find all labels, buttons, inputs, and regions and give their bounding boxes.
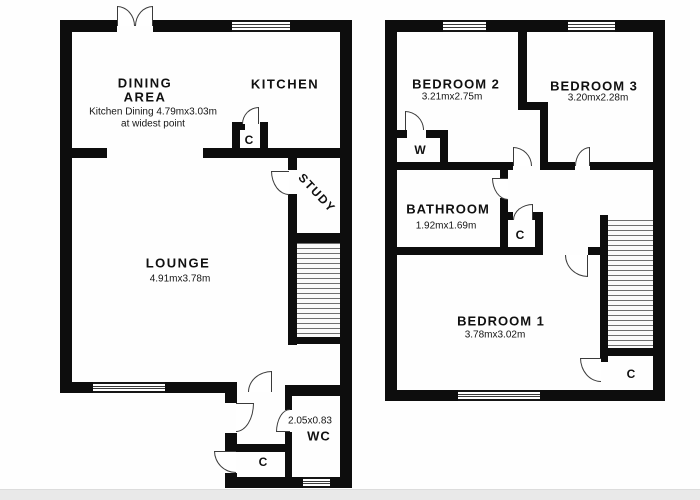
study-label: STUDY (295, 171, 338, 216)
staircase-first (608, 220, 653, 348)
window (568, 20, 615, 32)
wall-segment (500, 212, 513, 220)
bedroom3-label: BEDROOM 3 (550, 79, 638, 94)
floorplan-image: DINING AREA Kitchen Dining 4.79mx3.03m a… (0, 0, 700, 500)
bedroom2-dims: 3.21mx2.75m (422, 92, 483, 103)
wall-segment (340, 20, 352, 488)
kitchen-closet-label: C (245, 133, 254, 147)
window (93, 382, 165, 393)
french-door-right-arc (135, 6, 153, 26)
wall-segment (486, 20, 568, 32)
bedroom1-label: BEDROOM 1 (457, 314, 545, 329)
study-door-arc (271, 171, 289, 195)
wall-segment (518, 32, 527, 110)
wall-segment (153, 20, 232, 32)
wall-segment (385, 390, 458, 401)
wall-segment (72, 148, 107, 158)
kitchen-closet-door-arc (242, 107, 259, 124)
bathroom-label: BATHROOM (406, 202, 490, 217)
bedroom2-label: BEDROOM 2 (412, 77, 500, 92)
window (303, 477, 330, 488)
lounge-dims: 4.91mx3.78m (150, 274, 211, 285)
lounge-label: LOUNGE (146, 256, 211, 271)
bathroom-door-arc (492, 178, 508, 200)
wall-segment (600, 348, 653, 356)
wardrobe-label: W (414, 143, 425, 157)
bedroom1-closet-door-arc (580, 358, 601, 382)
wall-segment (653, 20, 665, 401)
wall-segment (225, 382, 237, 403)
dining-note-line1: Kitchen Dining 4.79mx3.03m (89, 107, 217, 118)
wall-segment (397, 162, 513, 170)
wall-segment (285, 385, 292, 410)
scan-edge-strip (0, 489, 700, 500)
wall-segment (288, 158, 297, 170)
window (443, 20, 486, 32)
landing-closet-label: C (516, 228, 525, 242)
bedroom1-closet-label: C (627, 367, 636, 381)
bedroom2-door-arc (513, 147, 532, 166)
wall-segment (288, 233, 352, 243)
bedroom3-door-arc (575, 147, 590, 166)
wall-segment (540, 162, 575, 170)
landing-closet-door-arc (513, 204, 533, 220)
window (232, 20, 290, 32)
wall-segment (203, 148, 352, 158)
wall-segment (288, 337, 352, 344)
wall-segment (540, 102, 548, 170)
lounge-hall-door-arc (248, 371, 272, 392)
hall-closet-label: C (259, 455, 268, 469)
dining-area-label-line1: DINING (118, 76, 173, 91)
wall-segment (288, 194, 297, 345)
wall-segment (397, 247, 543, 255)
wc-label: WC (307, 429, 331, 444)
bedroom1-dims: 3.78mx3.02m (465, 330, 526, 341)
staircase-ground (297, 243, 340, 337)
french-door-left-arc (117, 6, 135, 26)
hall-closet-door-arc (214, 451, 236, 473)
wall-segment (225, 477, 303, 488)
wall-segment (260, 122, 268, 152)
bedroom3-dims: 3.20mx2.28m (568, 93, 629, 104)
wall-segment (285, 432, 292, 477)
kitchen-label: KITCHEN (251, 77, 319, 92)
hall-door-arc (236, 403, 254, 432)
bedroom1-door-arc (565, 255, 588, 277)
wall-segment (225, 433, 237, 452)
wall-segment (288, 385, 352, 396)
wall-segment (385, 20, 397, 401)
wc-dims: 2.05x0.83 (288, 416, 332, 427)
dining-area-label-line2: AREA (124, 90, 167, 105)
wall-segment (590, 162, 653, 170)
wall-segment (397, 130, 407, 138)
window (458, 390, 540, 401)
wall-segment (540, 390, 665, 401)
dining-note-line2: at widest point (121, 119, 185, 130)
wardrobe-door-arc (405, 111, 424, 130)
wall-segment (600, 215, 608, 362)
wall-segment (60, 20, 72, 393)
wall-segment (330, 477, 348, 488)
bathroom-dims: 1.92mx1.69m (416, 221, 477, 232)
wall-segment (60, 382, 93, 393)
wall-segment (237, 444, 288, 452)
